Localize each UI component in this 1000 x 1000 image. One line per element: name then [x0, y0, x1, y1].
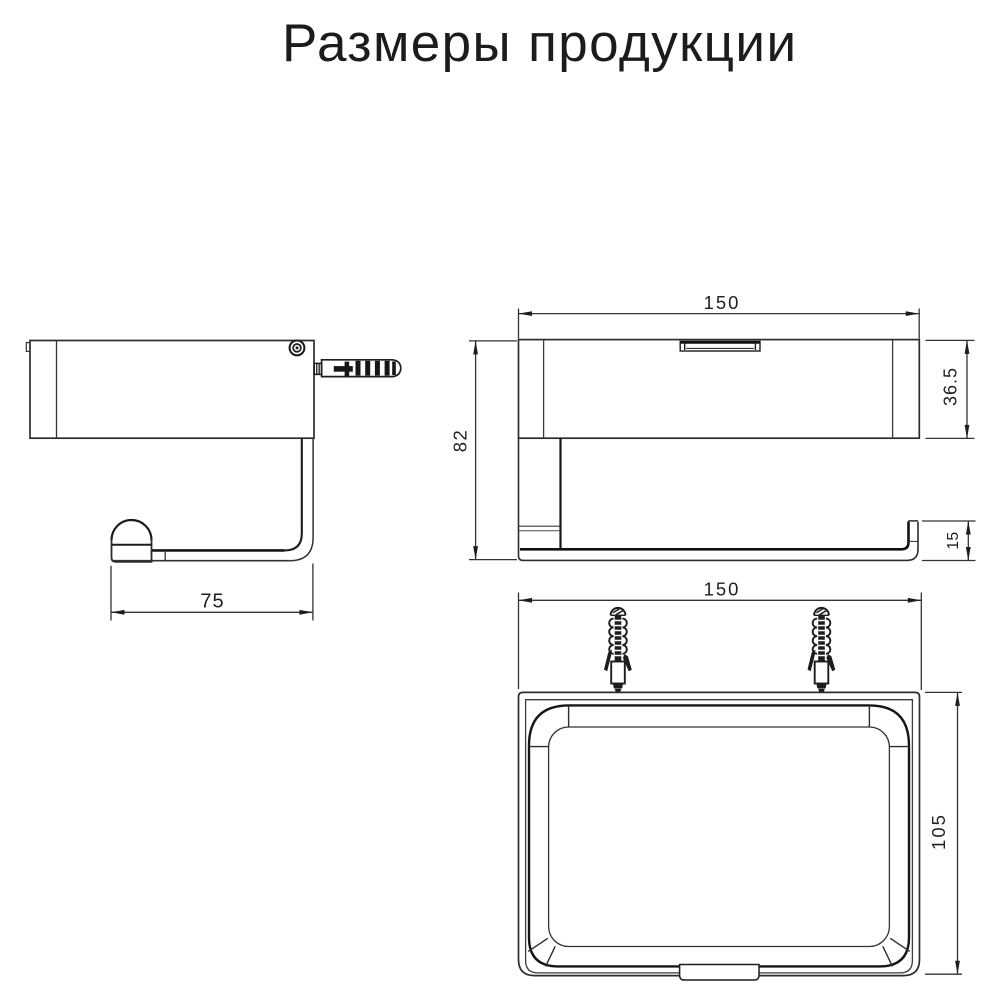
svg-text:75: 75 [200, 591, 224, 613]
svg-text:36.5: 36.5 [941, 367, 961, 406]
svg-text:150: 150 [704, 579, 741, 600]
svg-text:105: 105 [928, 813, 949, 850]
svg-text:150: 150 [704, 292, 741, 313]
svg-text:82: 82 [450, 429, 471, 453]
svg-text:15: 15 [945, 531, 962, 549]
